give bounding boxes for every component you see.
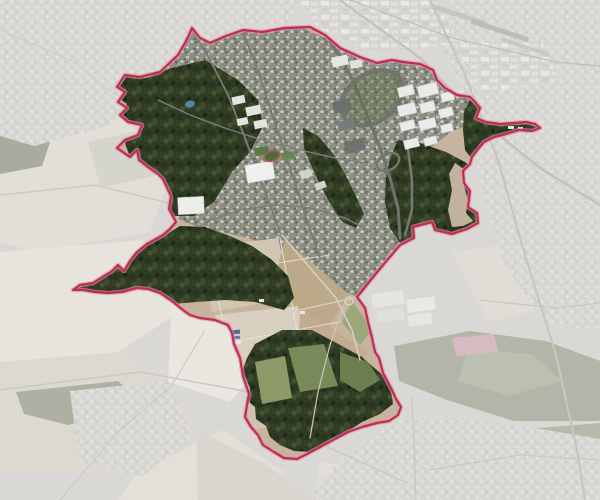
satellite-map (0, 0, 600, 500)
map-viewport (0, 0, 600, 500)
